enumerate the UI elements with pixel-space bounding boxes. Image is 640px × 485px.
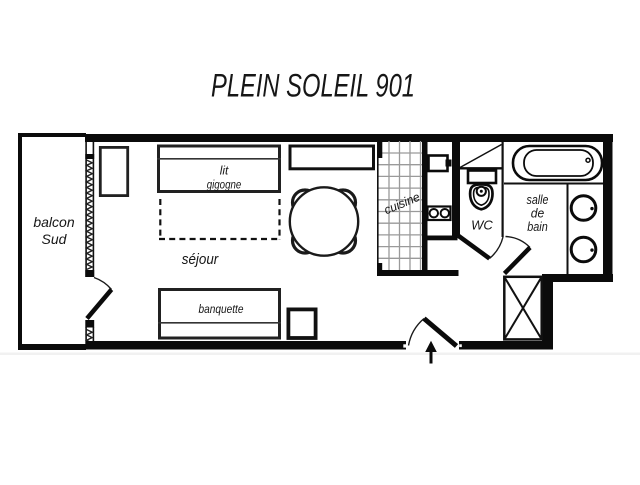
svg-text:PLEIN SOLEIL 901: PLEIN SOLEIL 901 xyxy=(211,67,415,103)
svg-text:lit: lit xyxy=(220,164,229,178)
svg-text:salle: salle xyxy=(527,193,549,207)
svg-text:banquette: banquette xyxy=(199,302,244,316)
svg-text:de: de xyxy=(531,207,545,221)
svg-text:WC: WC xyxy=(471,218,493,233)
svg-text:balcon: balcon xyxy=(33,214,74,230)
svg-text:séjour: séjour xyxy=(182,251,219,268)
svg-text:gigogne: gigogne xyxy=(207,178,242,192)
svg-text:Sud: Sud xyxy=(42,231,68,247)
svg-text:bain: bain xyxy=(527,220,548,234)
